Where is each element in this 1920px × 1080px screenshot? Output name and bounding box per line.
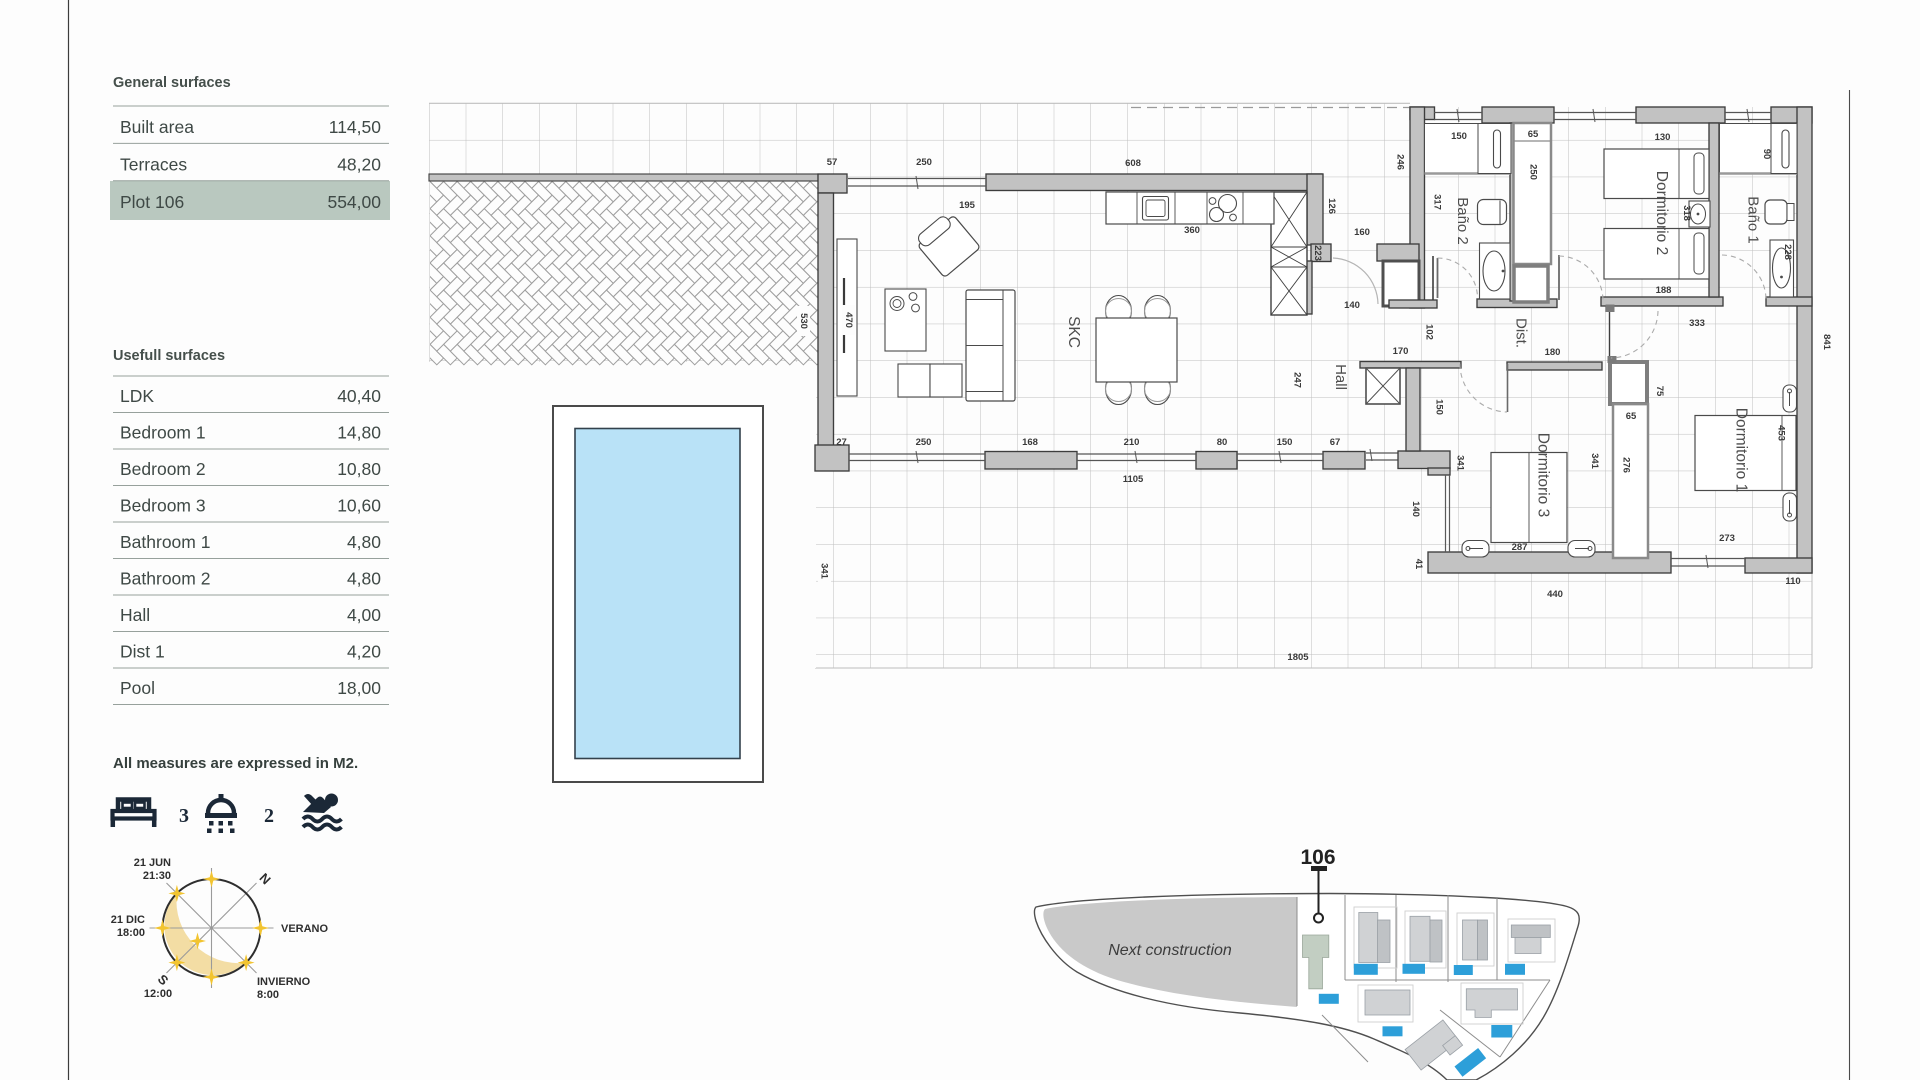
svg-text:150: 150 [1277,437,1293,448]
svg-text:SKC: SKC [1065,316,1082,348]
svg-text:Pool: Pool [120,678,155,698]
svg-text:Bathroom 2: Bathroom 2 [120,569,210,589]
svg-text:453: 453 [1775,425,1786,441]
svg-text:General surfaces: General surfaces [113,75,231,91]
svg-text:110: 110 [1785,576,1800,587]
svg-text:80: 80 [1217,437,1228,448]
svg-text:LDK: LDK [120,386,154,406]
svg-text:276: 276 [1620,457,1631,473]
svg-text:90: 90 [1761,149,1772,160]
svg-text:10,80: 10,80 [337,459,381,479]
svg-text:250: 250 [916,157,932,168]
svg-text:287: 287 [1512,542,1528,553]
svg-text:554,00: 554,00 [327,192,381,212]
svg-text:4,00: 4,00 [347,605,381,625]
svg-text:333: 333 [1689,318,1705,329]
svg-text:Built area: Built area [120,117,194,137]
svg-text:27: 27 [836,437,847,448]
svg-text:2: 2 [264,805,274,827]
svg-text:608: 608 [1125,158,1141,169]
svg-text:18:00: 18:00 [117,927,145,939]
svg-text:40,40: 40,40 [337,386,381,406]
svg-text:170: 170 [1393,346,1409,357]
svg-text:12:00: 12:00 [144,988,172,1000]
svg-text:1805: 1805 [1287,652,1309,663]
svg-text:Dormitorio 1: Dormitorio 1 [1732,408,1749,492]
svg-text:114,50: 114,50 [329,117,381,137]
svg-text:VERANO: VERANO [281,923,329,935]
svg-text:75: 75 [1654,386,1665,397]
svg-text:4,80: 4,80 [347,569,381,589]
svg-text:168: 168 [1022,437,1038,448]
svg-text:1105: 1105 [1123,474,1144,485]
svg-text:317: 317 [1431,194,1442,210]
svg-text:180: 180 [1545,347,1561,358]
svg-text:195: 195 [959,200,976,211]
svg-text:318: 318 [1681,205,1692,221]
svg-text:Usefull surfaces: Usefull surfaces [113,348,225,364]
svg-text:106: 106 [1300,846,1335,869]
svg-text:Baño 1: Baño 1 [1745,196,1762,244]
svg-text:41: 41 [1413,559,1424,570]
svg-text:341: 341 [818,563,829,580]
svg-text:Dormitorio 2: Dormitorio 2 [1653,171,1670,255]
svg-text:150: 150 [1433,399,1444,415]
svg-text:188: 188 [1656,285,1672,296]
svg-text:Bathroom 1: Bathroom 1 [120,532,210,552]
svg-text:18,00: 18,00 [337,678,381,698]
svg-text:8:00: 8:00 [257,989,279,1001]
svg-text:228: 228 [1782,244,1793,260]
svg-text:Bedroom 3: Bedroom 3 [120,496,206,516]
svg-text:Dist 1: Dist 1 [120,642,165,662]
svg-text:223: 223 [1312,245,1323,261]
svg-text:3: 3 [179,805,189,827]
svg-text:Hall: Hall [1332,364,1349,390]
svg-text:140: 140 [1344,300,1360,311]
svg-text:250: 250 [1527,164,1538,180]
svg-text:246: 246 [1394,154,1405,170]
svg-text:150: 150 [1451,131,1467,142]
svg-text:140: 140 [1410,501,1421,517]
svg-text:Baño 2: Baño 2 [1454,197,1471,245]
svg-text:48,20: 48,20 [337,154,381,174]
svg-text:360: 360 [1184,225,1200,236]
svg-text:65: 65 [1626,411,1637,422]
svg-text:14,80: 14,80 [337,423,381,443]
svg-text:250: 250 [916,437,932,448]
svg-text:130: 130 [1655,132,1671,143]
svg-text:247: 247 [1291,372,1302,388]
svg-text:530: 530 [798,313,809,329]
svg-text:21:30: 21:30 [143,870,171,882]
svg-text:341: 341 [1589,453,1600,470]
svg-text:Plot 106: Plot 106 [120,192,184,212]
svg-text:102: 102 [1423,324,1434,340]
svg-text:67: 67 [1330,437,1341,448]
svg-text:Dormitorio 3: Dormitorio 3 [1534,433,1551,517]
svg-text:210: 210 [1124,437,1140,448]
svg-text:841: 841 [1821,334,1832,351]
svg-text:160: 160 [1354,227,1370,238]
svg-text:341: 341 [1454,455,1465,472]
svg-text:21 DIC: 21 DIC [111,914,145,926]
svg-text:10,60: 10,60 [337,496,381,516]
svg-text:273: 273 [1719,533,1735,544]
svg-text:21 JUN: 21 JUN [134,857,171,869]
svg-text:Hall: Hall [120,605,150,625]
svg-text:57: 57 [827,157,838,168]
svg-text:440: 440 [1547,589,1563,600]
svg-text:470: 470 [843,312,854,328]
svg-text:65: 65 [1528,129,1539,140]
svg-text:126: 126 [1326,198,1337,214]
svg-text:4,80: 4,80 [347,532,381,552]
svg-text:Bedroom 1: Bedroom 1 [120,423,206,443]
svg-text:INVIERNO: INVIERNO [257,976,311,988]
svg-text:Terraces: Terraces [120,154,187,174]
svg-text:Next construction: Next construction [1108,942,1232,959]
svg-text:Dist.: Dist. [1513,318,1530,348]
svg-text:4,20: 4,20 [347,642,381,662]
svg-text:All measures are expressed in: All measures are expressed in M2. [113,755,358,772]
svg-text:Bedroom 2: Bedroom 2 [120,459,206,479]
